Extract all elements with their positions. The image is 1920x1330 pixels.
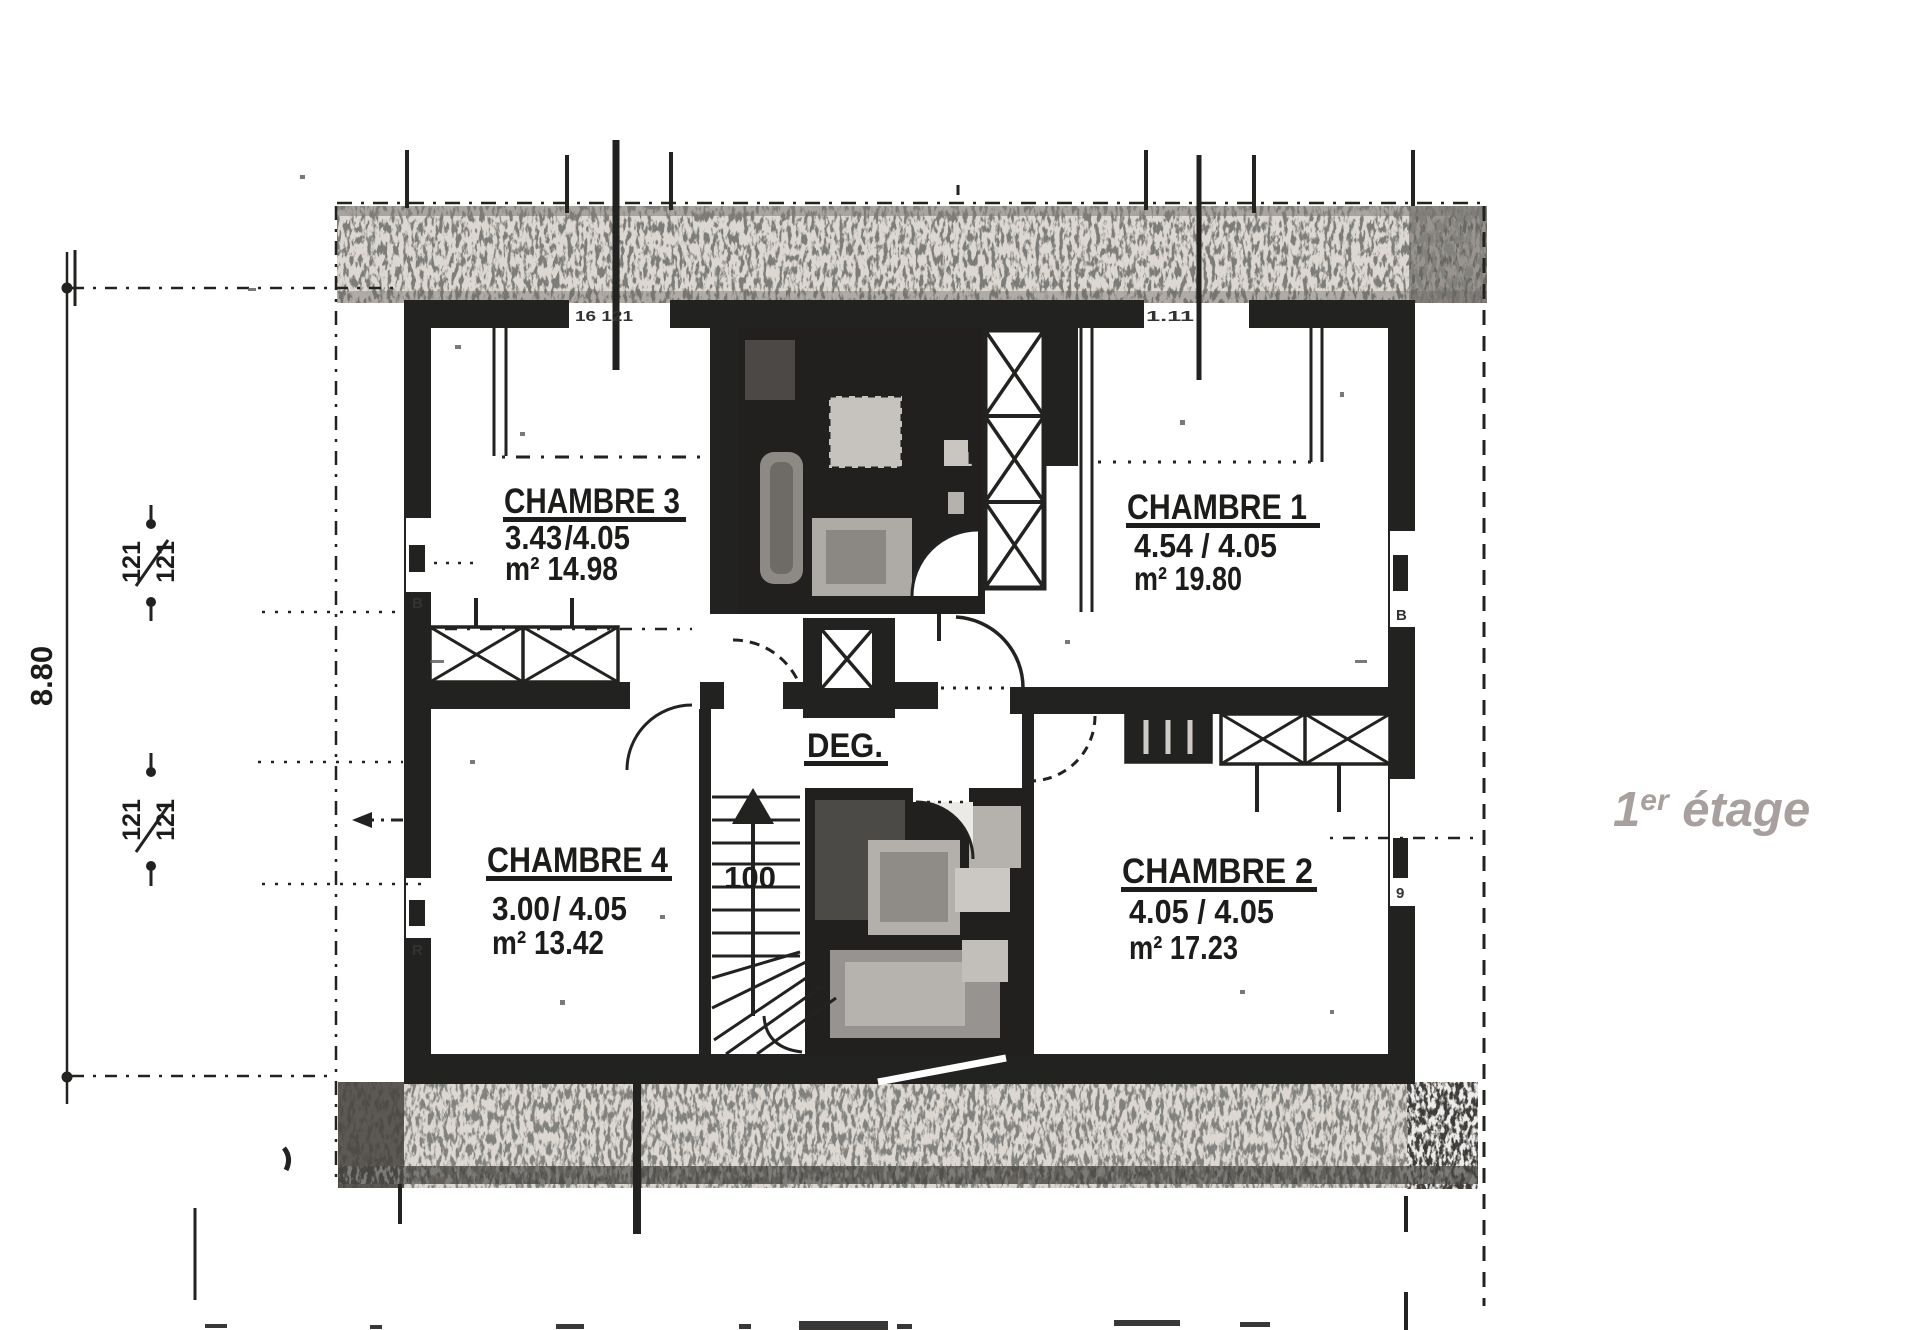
- svg-text:1.11: 1.11: [1146, 308, 1194, 325]
- svg-text:B: B: [1396, 607, 1407, 624]
- svg-text:9: 9: [1396, 885, 1404, 902]
- svg-text:B: B: [412, 595, 423, 612]
- svg-text:4.54 / 4.05: 4.54 / 4.05: [1134, 527, 1277, 564]
- svg-text:3.00 / 4.05: 3.00 / 4.05: [492, 890, 627, 927]
- svg-text:DEG.: DEG.: [807, 727, 883, 765]
- svg-text:100: 100: [724, 860, 776, 895]
- svg-text:m² 19.80: m² 19.80: [1134, 560, 1242, 597]
- svg-text:8.80: 8.80: [24, 646, 59, 706]
- svg-text:CHAMBRE 4: CHAMBRE 4: [487, 841, 668, 880]
- svg-text:121: 121: [152, 799, 180, 841]
- svg-text:121: 121: [118, 799, 146, 841]
- svg-text:4.05 / 4.05: 4.05 / 4.05: [1129, 893, 1274, 930]
- svg-text:CHAMBRE 1: CHAMBRE 1: [1127, 488, 1307, 527]
- svg-text:16 121: 16 121: [575, 308, 633, 325]
- svg-text:m² 14.98: m² 14.98: [505, 550, 618, 587]
- svg-text:m² 13.42: m² 13.42: [492, 924, 604, 961]
- svg-text:21: 21: [950, 449, 972, 471]
- svg-text:121: 121: [118, 541, 146, 583]
- svg-text:CHAMBRE 3: CHAMBRE 3: [504, 482, 680, 521]
- svg-text:CHAMBRE 2: CHAMBRE 2: [1122, 852, 1313, 891]
- svg-text:R: R: [412, 942, 423, 959]
- svg-text:1er étage: 1er étage: [1613, 783, 1810, 837]
- svg-text:m² 17.23: m² 17.23: [1129, 929, 1238, 966]
- svg-text:b: b: [950, 495, 962, 517]
- svg-text:121: 121: [152, 541, 180, 583]
